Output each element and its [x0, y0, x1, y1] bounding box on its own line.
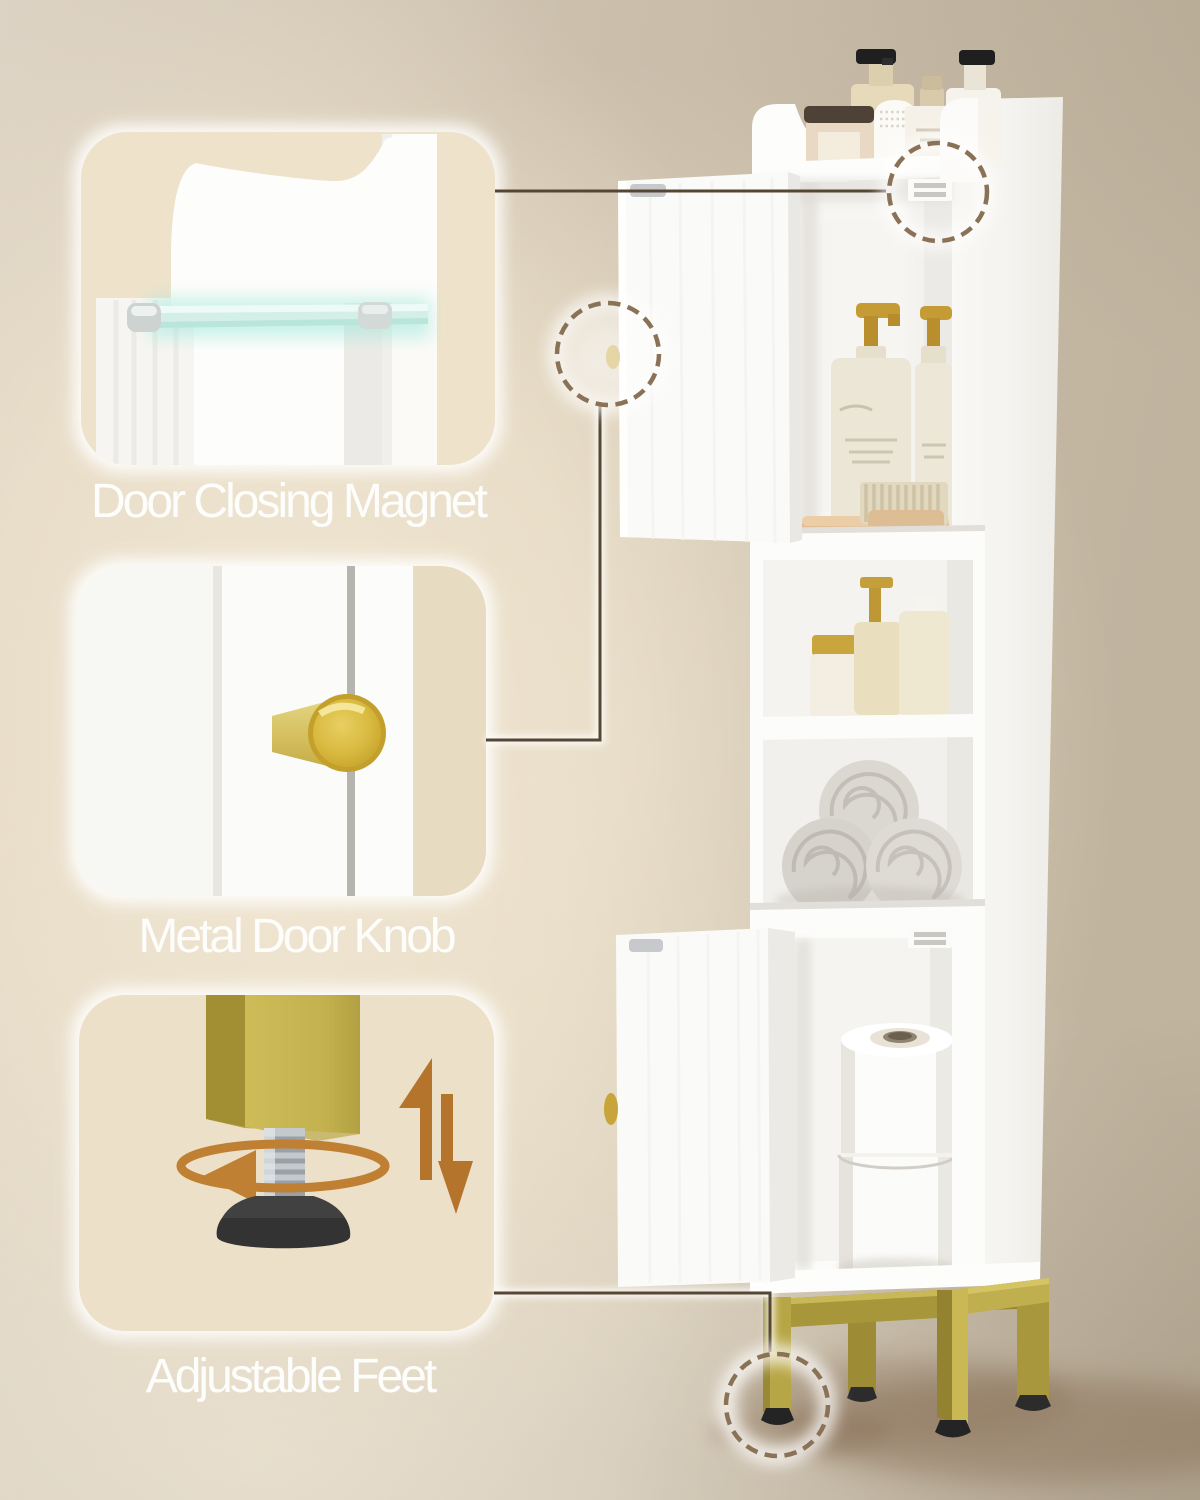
svg-text:Door Closing Magnet: Door Closing Magnet — [91, 475, 488, 528]
svg-text:Adjustable Feet: Adjustable Feet — [146, 1350, 437, 1403]
svg-text:Metal Door Knob: Metal Door Knob — [138, 910, 454, 963]
